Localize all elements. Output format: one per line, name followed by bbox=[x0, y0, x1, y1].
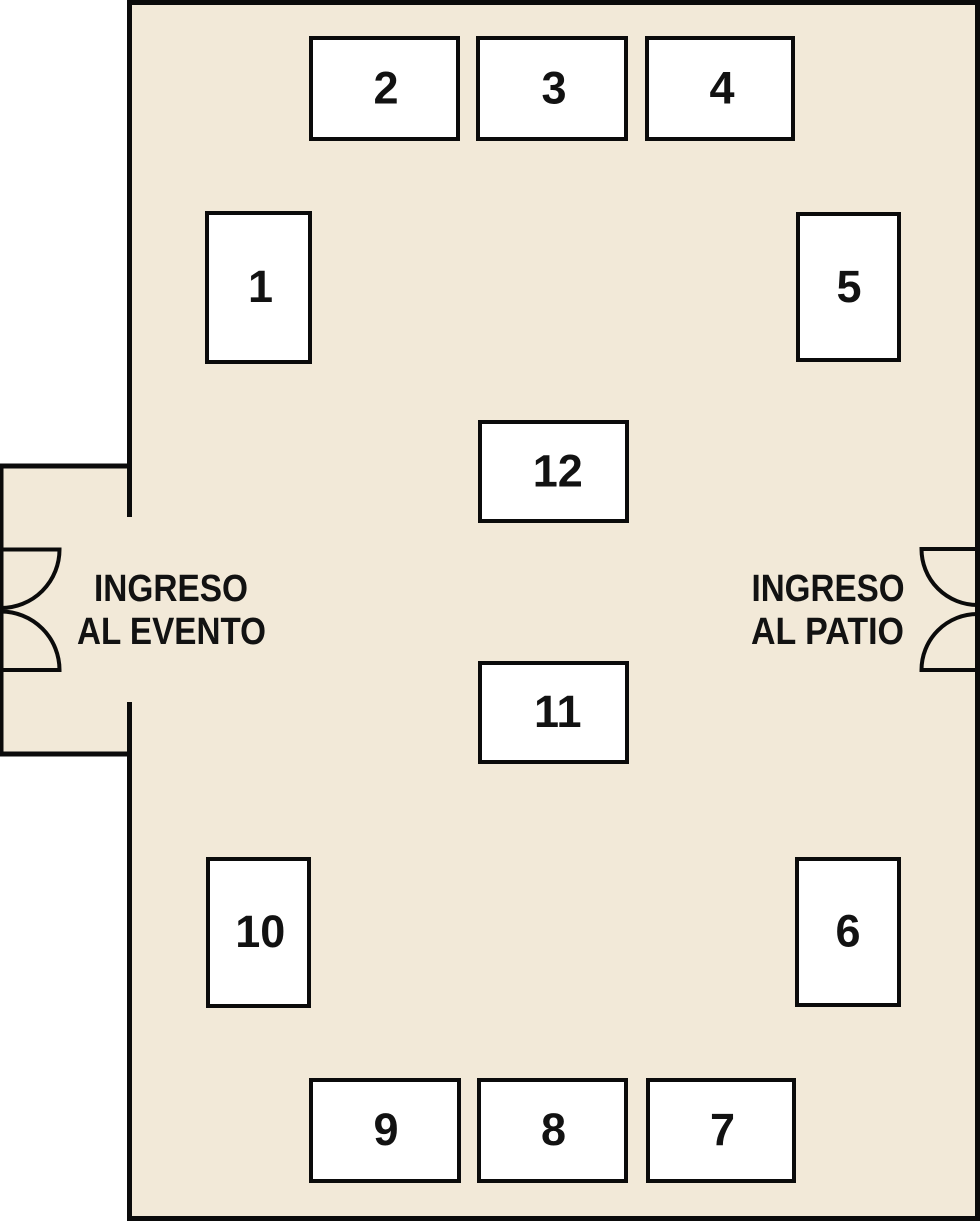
svg-text:8: 8 bbox=[541, 1104, 566, 1155]
svg-text:6: 6 bbox=[835, 906, 860, 957]
svg-text:1: 1 bbox=[248, 261, 273, 312]
svg-text:2: 2 bbox=[373, 63, 398, 114]
svg-text:10: 10 bbox=[235, 906, 285, 957]
svg-text:AL EVENTO: AL EVENTO bbox=[77, 611, 266, 653]
svg-text:3: 3 bbox=[541, 63, 566, 114]
svg-text:7: 7 bbox=[710, 1104, 735, 1155]
svg-text:4: 4 bbox=[709, 63, 734, 114]
svg-text:12: 12 bbox=[533, 445, 583, 496]
svg-text:INGRESO: INGRESO bbox=[752, 568, 905, 610]
svg-text:INGRESO: INGRESO bbox=[94, 568, 248, 610]
svg-text:5: 5 bbox=[836, 261, 861, 312]
svg-text:9: 9 bbox=[373, 1104, 398, 1155]
svg-text:11: 11 bbox=[534, 686, 582, 737]
svg-text:AL PATIO: AL PATIO bbox=[751, 611, 904, 653]
